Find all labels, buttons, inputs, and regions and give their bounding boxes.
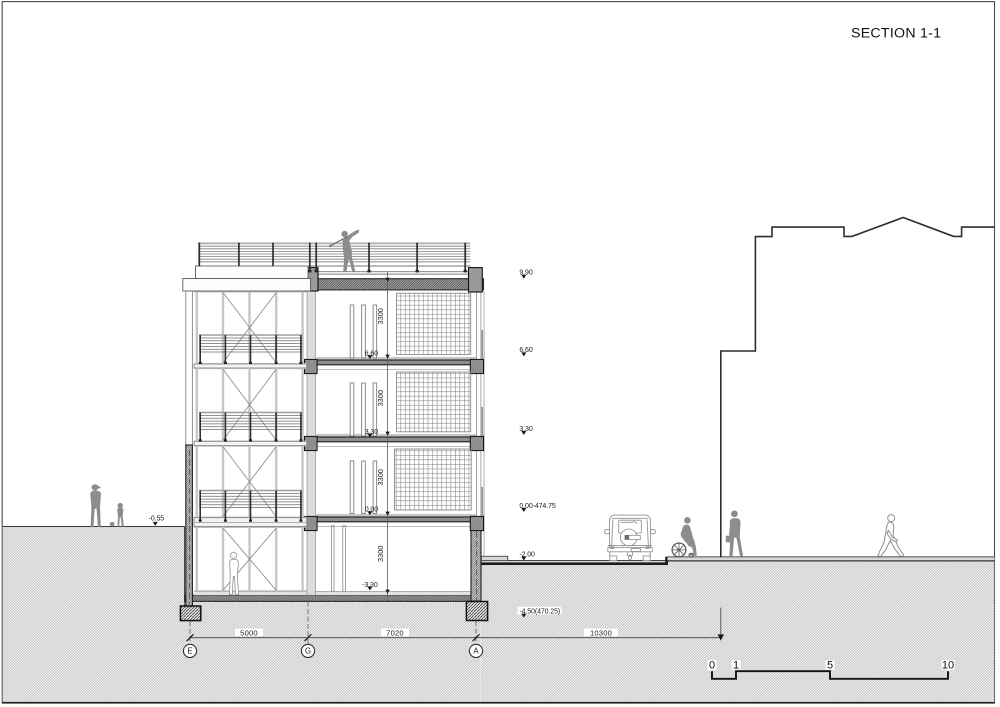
svg-text:3.30: 3.30 [519,426,532,433]
svg-text:10: 10 [942,660,954,672]
svg-text:0: 0 [709,660,715,672]
svg-text:-2.00: -2.00 [519,551,535,558]
svg-text:5: 5 [827,660,833,672]
svg-text:E: E [187,647,192,656]
svg-text:5000: 5000 [240,628,258,637]
svg-text:3300: 3300 [376,546,385,562]
svg-text:SECTION 1-1: SECTION 1-1 [851,26,941,42]
svg-text:3300: 3300 [376,308,385,324]
svg-text:G: G [305,647,311,656]
svg-text:1: 1 [733,660,739,672]
svg-text:-0.55: -0.55 [149,516,165,523]
svg-text:7020: 7020 [386,628,404,637]
svg-text:6.60: 6.60 [519,347,532,354]
svg-text:9.90: 9.90 [519,270,532,277]
svg-text:10300: 10300 [590,628,612,637]
svg-text:3300: 3300 [376,469,385,485]
svg-text:A: A [473,647,479,656]
svg-text:3300: 3300 [376,390,385,406]
